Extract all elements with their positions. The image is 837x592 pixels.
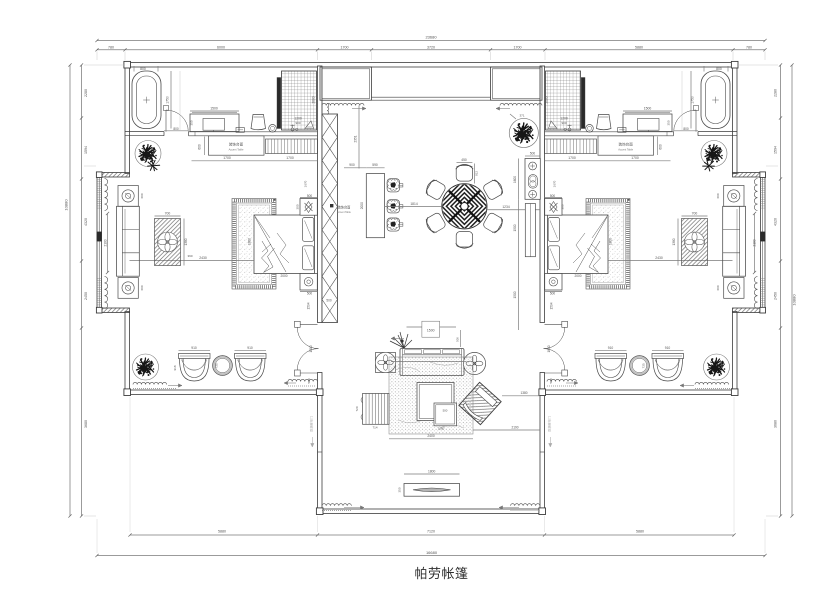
svg-text:1380: 1380 [672, 238, 676, 245]
svg-text:1594: 1594 [550, 302, 554, 309]
svg-text:500: 500 [455, 337, 459, 342]
svg-text:500: 500 [443, 409, 448, 413]
svg-text:371: 371 [519, 114, 524, 118]
svg-text:600: 600 [198, 144, 202, 150]
svg-text:2450: 2450 [84, 292, 88, 300]
svg-text:500: 500 [307, 378, 311, 383]
svg-text:800: 800 [683, 127, 689, 131]
svg-text:1800: 1800 [428, 469, 436, 473]
svg-text:Accent Table: Accent Table [618, 148, 633, 152]
svg-text:2190: 2190 [511, 425, 518, 429]
svg-text:912: 912 [474, 171, 478, 176]
svg-text:4320: 4320 [773, 218, 777, 226]
svg-text:1500: 1500 [210, 106, 218, 110]
svg-text:590: 590 [372, 163, 378, 167]
svg-text:910: 910 [665, 346, 671, 350]
svg-text:3680: 3680 [84, 420, 88, 428]
svg-text:390: 390 [187, 254, 192, 258]
svg-text:600: 600 [659, 144, 663, 150]
svg-text:900: 900 [561, 121, 566, 125]
svg-text:2100: 2100 [753, 239, 757, 246]
svg-text:1700: 1700 [514, 45, 522, 49]
svg-text:7120: 7120 [427, 530, 435, 534]
svg-text:500: 500 [549, 378, 553, 383]
svg-text:918: 918 [173, 365, 177, 370]
svg-text:1060: 1060 [438, 427, 445, 431]
svg-text:Accent Table: Accent Table [229, 148, 244, 152]
svg-text:600: 600 [140, 285, 144, 290]
svg-text:10880: 10880 [63, 199, 68, 211]
svg-text:2000: 2000 [360, 202, 364, 209]
svg-text:720: 720 [355, 406, 359, 411]
svg-text:500: 500 [307, 291, 313, 295]
svg-text:1594: 1594 [307, 302, 311, 309]
svg-text:1700: 1700 [286, 156, 294, 160]
svg-text:500: 500 [530, 152, 536, 156]
svg-text:2000: 2000 [544, 96, 548, 103]
svg-text:装饰台面: 装饰台面 [338, 204, 351, 209]
svg-text:5880: 5880 [636, 530, 644, 534]
svg-text:2000: 2000 [280, 274, 287, 278]
svg-text:1380: 1380 [520, 391, 527, 395]
svg-text:1500: 1500 [513, 224, 517, 231]
svg-text:900: 900 [295, 121, 300, 125]
svg-text:4320: 4320 [84, 218, 88, 226]
svg-text:2280: 2280 [84, 89, 88, 97]
svg-text:725: 725 [642, 363, 646, 368]
svg-text:500: 500 [550, 291, 556, 295]
svg-text:Accent Table: Accent Table [337, 211, 351, 214]
svg-text:1234: 1234 [502, 205, 510, 209]
svg-text:600: 600 [716, 193, 720, 198]
svg-text:5880: 5880 [218, 530, 226, 534]
svg-text:2351: 2351 [354, 135, 358, 142]
svg-text:1800: 1800 [248, 238, 252, 245]
svg-text:1500: 1500 [513, 291, 517, 298]
svg-text:300: 300 [295, 204, 299, 209]
svg-text:800: 800 [173, 127, 179, 131]
svg-text:1200: 1200 [560, 117, 568, 121]
svg-text:900: 900 [349, 163, 355, 167]
svg-text:1670: 1670 [553, 180, 557, 187]
svg-text:2430: 2430 [655, 256, 663, 260]
svg-text:23680: 23680 [425, 35, 437, 40]
svg-text:700: 700 [692, 211, 698, 215]
svg-text:1800: 1800 [309, 345, 313, 352]
svg-text:714: 714 [372, 426, 377, 430]
svg-text:1200: 1200 [294, 117, 302, 121]
svg-text:2000: 2000 [574, 274, 581, 278]
svg-text:800: 800 [716, 67, 722, 71]
svg-text:780: 780 [108, 45, 114, 49]
svg-text:800: 800 [140, 67, 146, 71]
svg-text:350: 350 [190, 120, 194, 125]
svg-text:2450: 2450 [773, 292, 777, 300]
svg-text:装饰台面: 装饰台面 [619, 142, 634, 147]
svg-text:1380: 1380 [184, 238, 188, 245]
svg-text:700: 700 [165, 211, 171, 215]
svg-text:1800: 1800 [547, 345, 551, 352]
svg-text:1600: 1600 [513, 176, 517, 183]
svg-text:600: 600 [140, 193, 144, 198]
svg-text:450: 450 [461, 158, 467, 162]
svg-text:1800: 1800 [609, 238, 613, 245]
svg-text:16680: 16680 [426, 550, 438, 555]
svg-text:1500: 1500 [427, 329, 435, 333]
svg-text:2100: 2100 [104, 239, 108, 246]
svg-text:防潮卷帘门: 防潮卷帘门 [546, 416, 551, 431]
svg-text:1700: 1700 [631, 156, 639, 160]
svg-text:2000: 2000 [312, 96, 316, 103]
svg-text:1700: 1700 [568, 156, 576, 160]
svg-text:350: 350 [667, 120, 671, 125]
svg-text:5880: 5880 [635, 45, 643, 49]
svg-text:2400: 2400 [427, 434, 435, 438]
svg-text:防潮卷帘门: 防潮卷帘门 [308, 416, 313, 431]
svg-text:2280: 2280 [773, 89, 777, 97]
svg-text:910: 910 [608, 346, 614, 350]
svg-text:10880: 10880 [791, 294, 796, 306]
svg-text:装饰台面: 装饰台面 [229, 142, 244, 147]
svg-text:1700: 1700 [223, 156, 231, 160]
svg-text:300: 300 [561, 204, 565, 209]
svg-text:1594: 1594 [773, 146, 777, 154]
svg-text:3680: 3680 [773, 420, 777, 428]
svg-text:1594: 1594 [84, 146, 88, 154]
svg-text:1814: 1814 [410, 202, 418, 206]
svg-text:2430: 2430 [199, 256, 207, 260]
svg-text:1670: 1670 [304, 180, 308, 187]
svg-text:3720: 3720 [427, 45, 435, 49]
svg-text:910: 910 [247, 346, 253, 350]
svg-text:725: 725 [215, 363, 219, 368]
svg-text:1700: 1700 [341, 45, 349, 49]
svg-text:780: 780 [746, 45, 752, 49]
svg-text:600: 600 [716, 285, 720, 290]
svg-text:1750: 1750 [691, 96, 695, 104]
svg-text:1750: 1750 [166, 96, 170, 104]
svg-text:帕劳帐篷: 帕劳帐篷 [414, 566, 468, 581]
svg-text:6000: 6000 [217, 45, 225, 49]
svg-text:350: 350 [397, 487, 401, 492]
svg-text:1500: 1500 [644, 106, 652, 110]
svg-text:500: 500 [326, 299, 332, 303]
svg-text:910: 910 [191, 346, 197, 350]
